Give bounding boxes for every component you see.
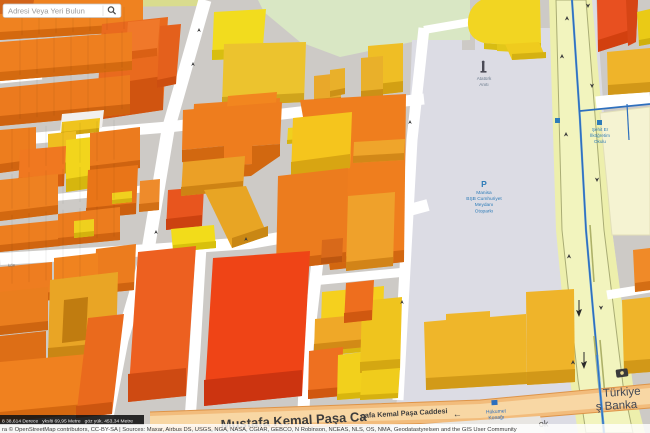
svg-text:Konağı: Konağı [488, 415, 504, 422]
svg-text:P: P [481, 179, 487, 189]
svg-text:Atatürk: Atatürk [477, 76, 492, 81]
svg-text:kde: kde [8, 262, 16, 268]
svg-text:8 38,614 Derece ykslti 69,95: 8 38,614 Derece ykslti 69,95 Metre göz y… [2, 418, 133, 424]
svg-text:Okulu: Okulu [594, 139, 606, 144]
svg-text:Otoparkı: Otoparkı [475, 208, 493, 214]
svg-text:İlköğretim: İlköğretim [590, 132, 610, 138]
svg-text:ra © OpenStreetMap contributor: ra © OpenStreetMap contributors, CC-BY-S… [2, 426, 517, 433]
svg-text:Anıtı: Anıtı [479, 82, 488, 87]
svg-text:←: ← [453, 409, 463, 419]
svg-text:Şehit Er: Şehit Er [592, 127, 609, 132]
svg-text:ş Banka: ş Banka [595, 399, 638, 414]
svg-text:Adresi Veya Yeri Bulun: Adresi Veya Yeri Bulun [8, 7, 85, 16]
svg-text:Manisa: Manisa [476, 190, 492, 196]
svg-text:BŞB Cumhuriyet: BŞB Cumhuriyet [466, 196, 502, 202]
svg-text:Meydanı: Meydanı [475, 202, 493, 208]
svg-text:Türkiye: Türkiye [603, 386, 641, 400]
